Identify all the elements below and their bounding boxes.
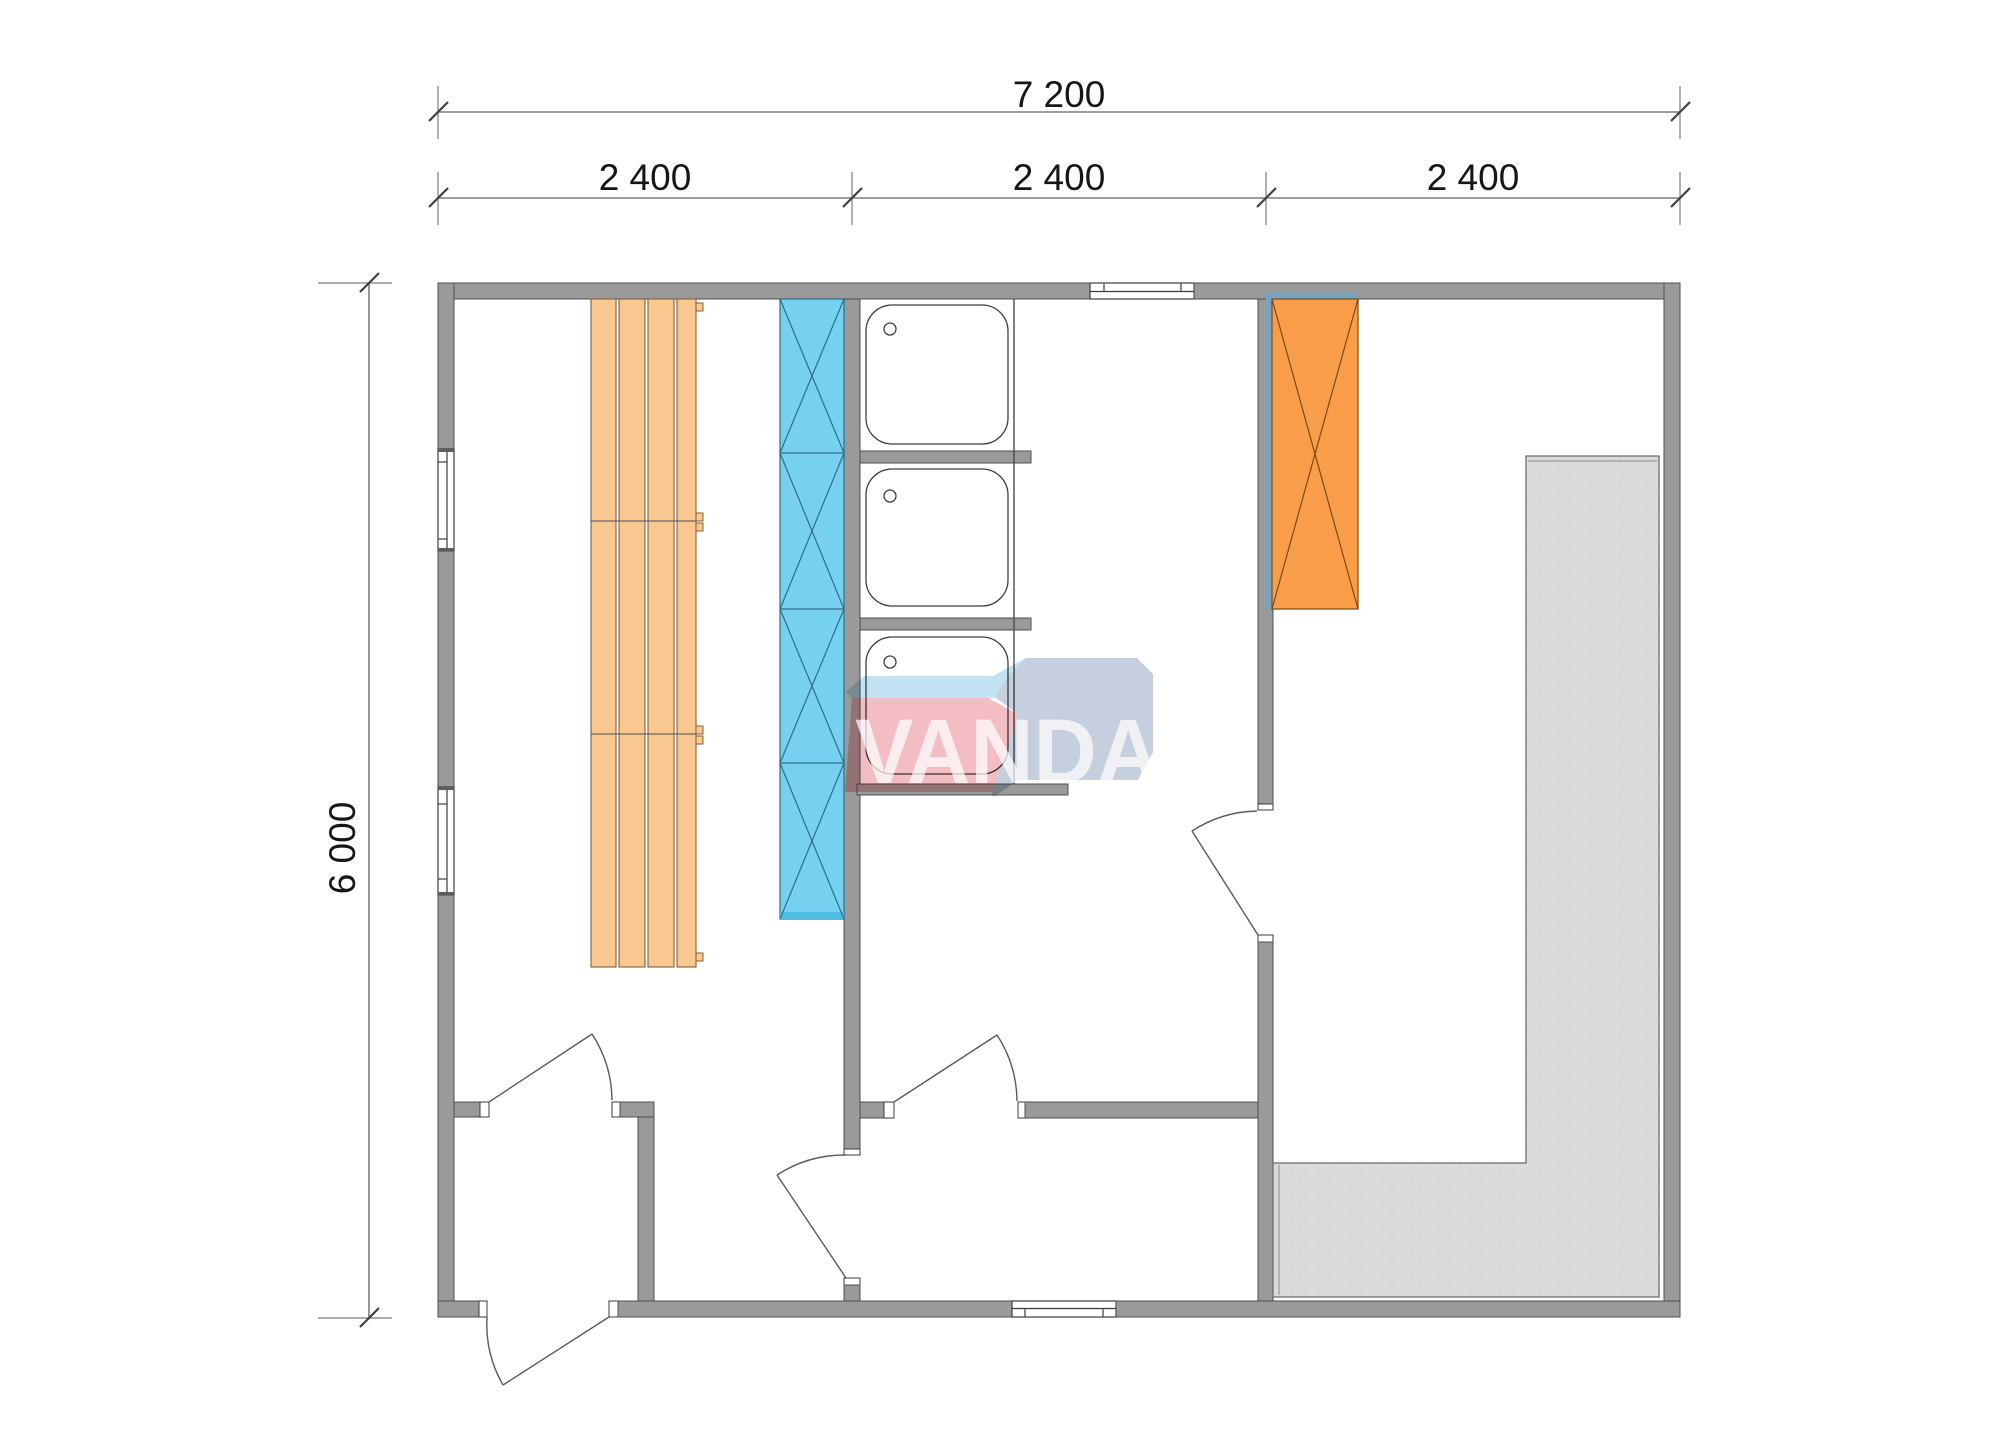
svg-text:2 400: 2 400 xyxy=(1427,157,1520,198)
svg-text:2 400: 2 400 xyxy=(599,157,692,198)
svg-text:2 400: 2 400 xyxy=(1013,157,1106,198)
svg-text:VANDA: VANDA xyxy=(855,701,1160,803)
svg-text:6 000: 6 000 xyxy=(322,802,363,895)
svg-text:7 200: 7 200 xyxy=(1013,74,1106,115)
